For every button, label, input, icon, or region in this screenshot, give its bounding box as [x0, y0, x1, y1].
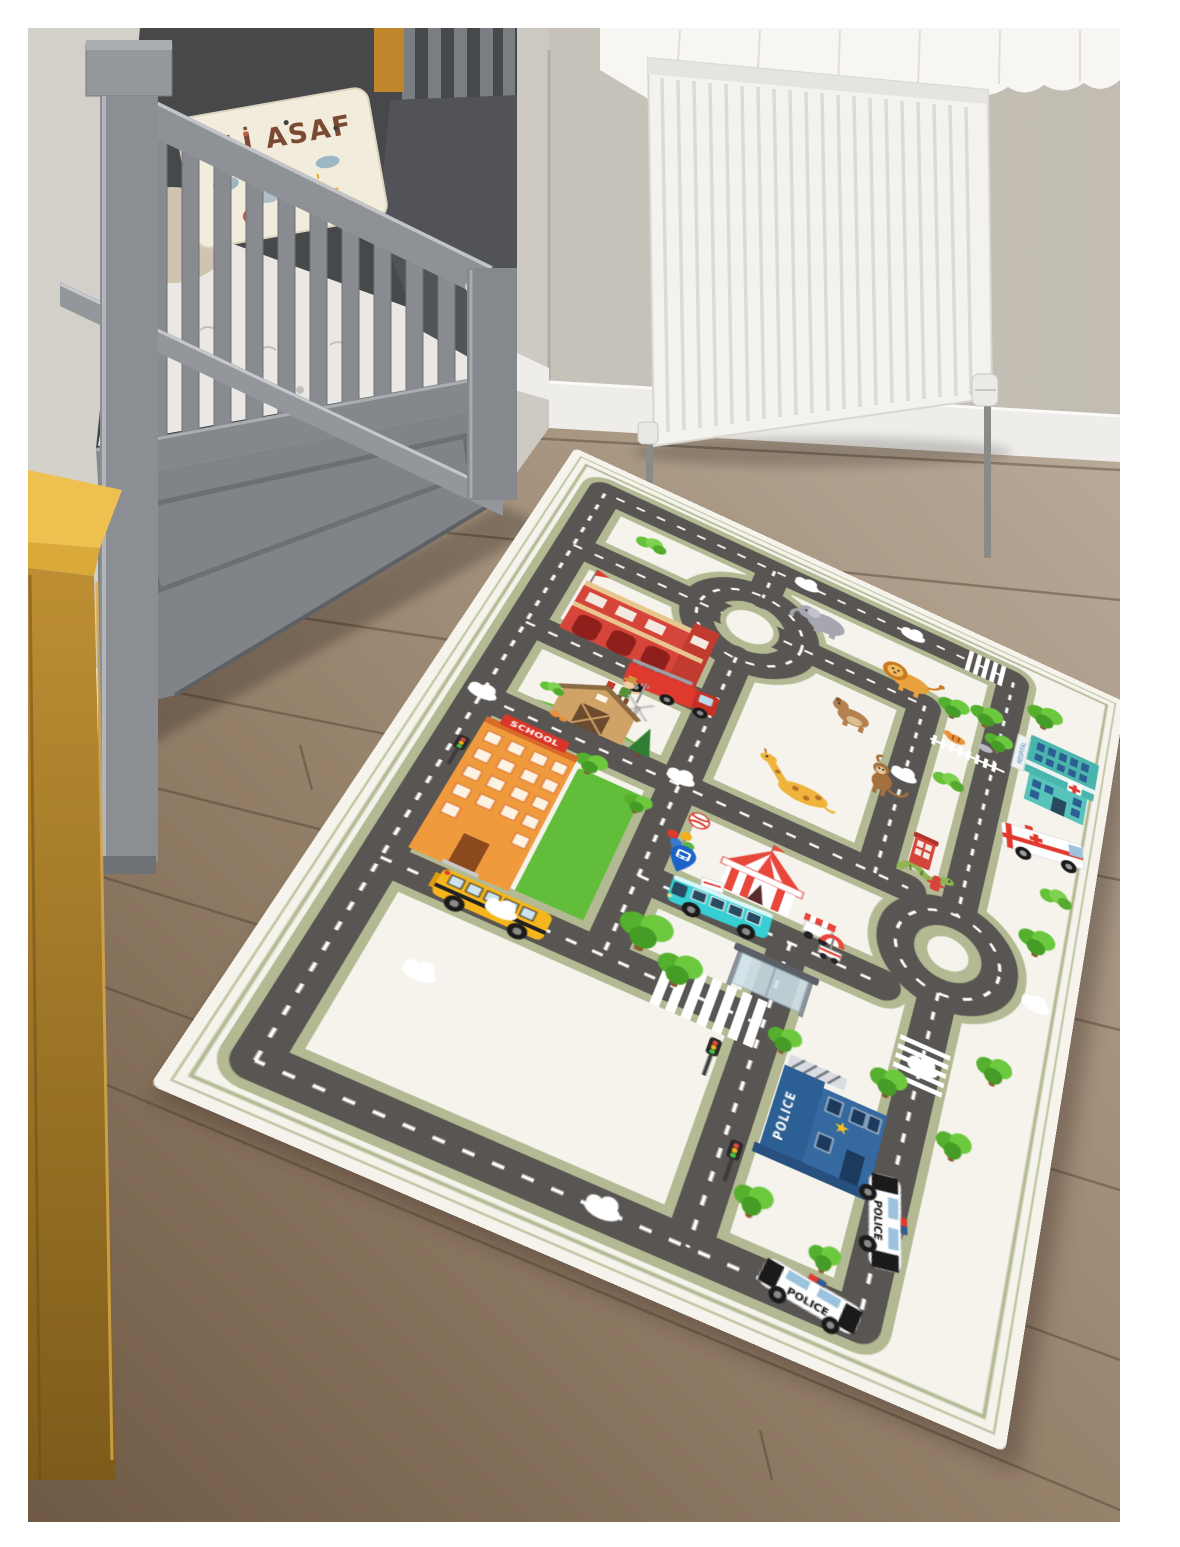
photo-frame-top — [0, 0, 1180, 28]
radiator-valve-left — [638, 422, 658, 444]
photo-frame-left — [0, 0, 28, 1547]
photo-of-nursery: ALİ ASAF — [0, 0, 1180, 1547]
radiator-pipe-right — [984, 396, 991, 558]
crib-right-post — [467, 268, 517, 500]
furniture-glimpse — [374, 28, 404, 92]
police-car-text: POLICE — [871, 1199, 885, 1242]
photo-frame-right — [1120, 0, 1180, 1547]
photo-frame-bottom — [0, 1522, 1180, 1547]
